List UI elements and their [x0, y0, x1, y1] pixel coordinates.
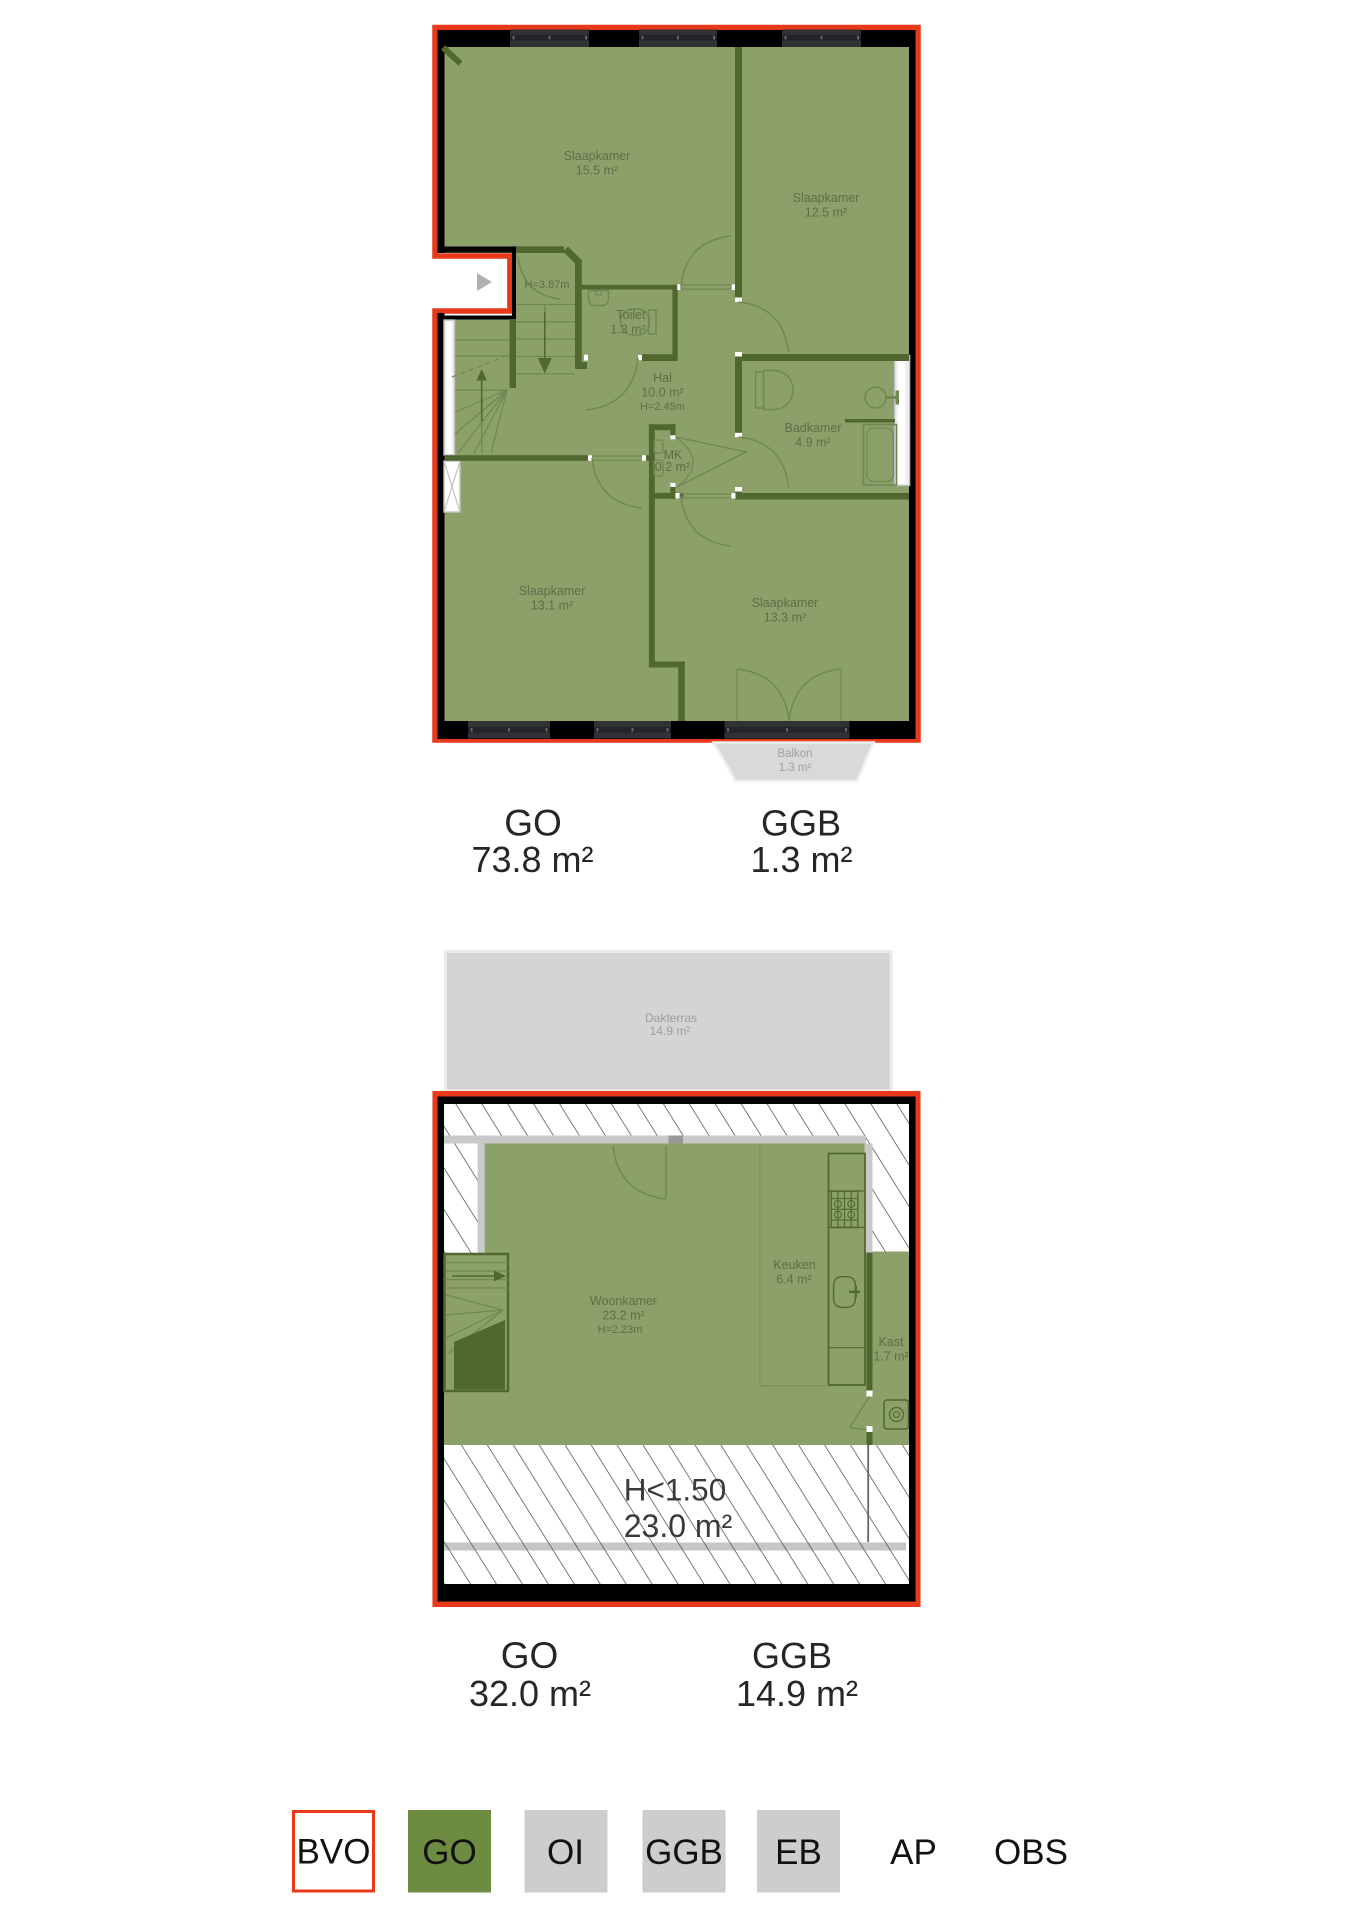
svg-text:GO: GO [422, 1833, 476, 1872]
svg-text:GO: GO [501, 1635, 559, 1676]
svg-text:Slaapkamer: Slaapkamer [564, 149, 631, 163]
svg-text:BVO: BVO [297, 1833, 371, 1872]
svg-text:1.3 m²: 1.3 m² [750, 839, 852, 880]
svg-text:Hal: Hal [653, 371, 672, 385]
svg-text:Dakterras: Dakterras [645, 1011, 697, 1025]
svg-text:H=2.23m: H=2.23m [598, 1324, 643, 1336]
svg-text:Balkon: Balkon [777, 748, 812, 760]
svg-text:73.8 m²: 73.8 m² [471, 839, 593, 880]
svg-text:13.3 m²: 13.3 m² [764, 611, 806, 625]
svg-text:Slaapkamer: Slaapkamer [752, 596, 819, 610]
svg-text:H<1.50: H<1.50 [624, 1472, 726, 1508]
svg-text:Badkamer: Badkamer [785, 421, 842, 435]
svg-text:4.9 m²: 4.9 m² [795, 436, 830, 450]
svg-text:Keuken: Keuken [773, 1258, 815, 1272]
svg-text:Slaapkamer: Slaapkamer [519, 584, 586, 598]
svg-text:14.9 m²: 14.9 m² [650, 1024, 691, 1038]
svg-text:23.0 m²: 23.0 m² [624, 1508, 733, 1544]
svg-text:1.3 m²: 1.3 m² [779, 762, 812, 774]
svg-text:H=3.87m: H=3.87m [525, 279, 570, 291]
svg-text:12.5 m²: 12.5 m² [805, 206, 847, 220]
svg-text:6.4 m²: 6.4 m² [776, 1273, 811, 1287]
svg-text:GGB: GGB [761, 803, 841, 844]
svg-text:AP: AP [890, 1833, 937, 1872]
svg-text:23.2 m²: 23.2 m² [602, 1309, 644, 1323]
svg-text:GGB: GGB [752, 1635, 832, 1676]
svg-text:10.0 m²: 10.0 m² [641, 386, 683, 400]
svg-text:H=2.45m: H=2.45m [640, 401, 685, 413]
svg-text:Woonkamer: Woonkamer [590, 1294, 657, 1308]
svg-text:13.1 m²: 13.1 m² [531, 599, 573, 613]
svg-text:0.2 m²: 0.2 m² [655, 460, 690, 474]
svg-text:1.3 m²: 1.3 m² [610, 323, 645, 337]
svg-text:Kast: Kast [878, 1335, 904, 1349]
svg-text:OI: OI [547, 1833, 584, 1872]
svg-text:GO: GO [504, 803, 562, 844]
svg-text:Slaapkamer: Slaapkamer [793, 191, 860, 205]
svg-text:GGB: GGB [645, 1833, 723, 1872]
svg-text:EB: EB [775, 1833, 822, 1872]
svg-text:14.9 m²: 14.9 m² [736, 1673, 858, 1714]
svg-text:15.5 m²: 15.5 m² [576, 164, 618, 178]
svg-text:32.0 m²: 32.0 m² [469, 1673, 591, 1714]
svg-text:1.7 m²: 1.7 m² [873, 1350, 908, 1364]
svg-text:OBS: OBS [994, 1833, 1068, 1872]
svg-text:Toilet: Toilet [616, 308, 646, 322]
